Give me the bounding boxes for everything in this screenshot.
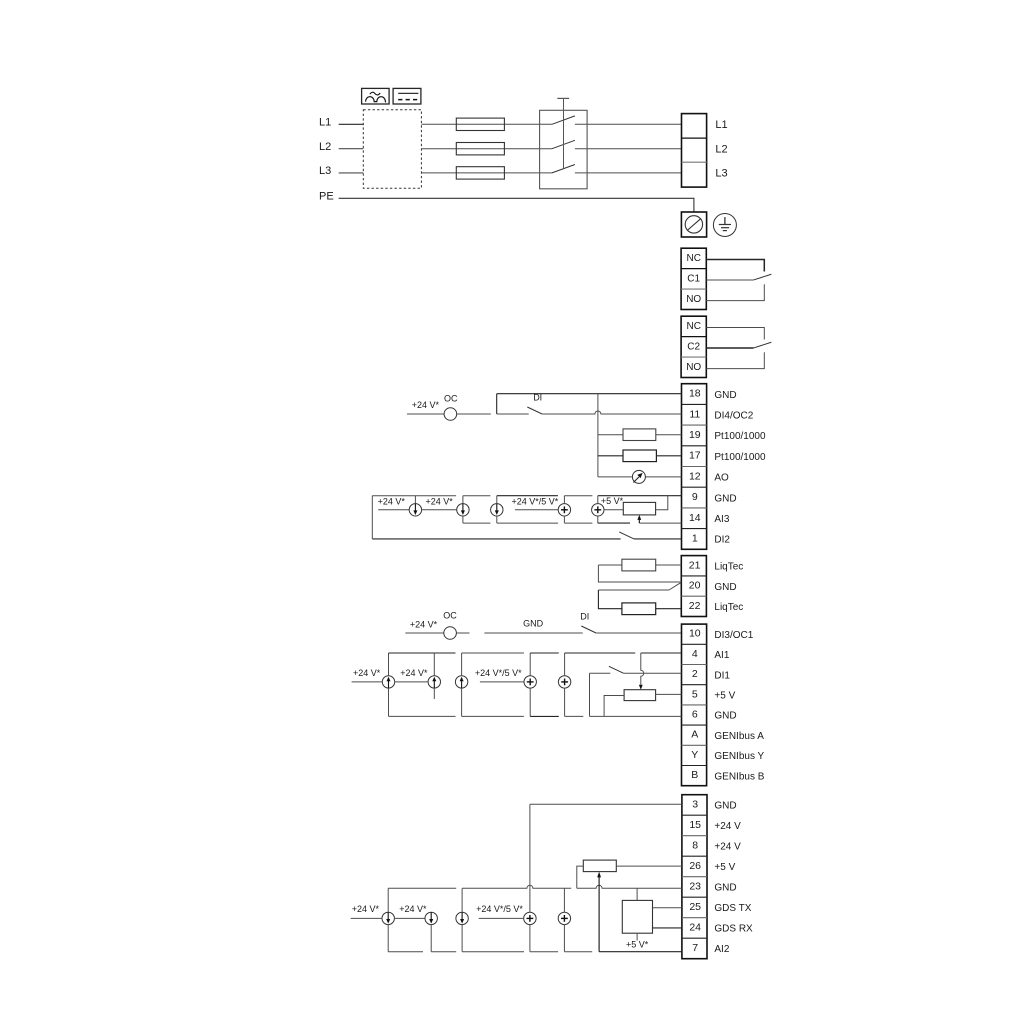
svg-text:+24 V*: +24 V* xyxy=(353,668,381,678)
svg-text:L1: L1 xyxy=(319,117,331,129)
svg-text:+24 V: +24 V xyxy=(714,842,741,853)
svg-text:Y: Y xyxy=(691,749,698,761)
svg-text:18: 18 xyxy=(689,388,701,400)
svg-text:AO: AO xyxy=(714,473,729,484)
svg-text:Pt100/1000: Pt100/1000 xyxy=(714,452,766,463)
svg-text:6: 6 xyxy=(692,709,698,721)
svg-text:NO: NO xyxy=(686,362,701,373)
svg-text:+24 V*: +24 V* xyxy=(378,496,406,506)
svg-text:GENIbus Y: GENIbus Y xyxy=(714,751,764,762)
svg-text:GND: GND xyxy=(523,619,544,629)
svg-text:NC: NC xyxy=(686,253,700,264)
svg-text:17: 17 xyxy=(689,450,701,462)
svg-text:8: 8 xyxy=(692,839,698,851)
svg-text:L3: L3 xyxy=(715,168,727,180)
svg-text:NC: NC xyxy=(686,321,700,332)
svg-text:B: B xyxy=(691,769,698,781)
svg-text:24: 24 xyxy=(689,921,701,933)
svg-text:Pt100/1000: Pt100/1000 xyxy=(714,431,766,442)
svg-text:21: 21 xyxy=(689,559,701,571)
svg-text:L1: L1 xyxy=(715,119,727,131)
svg-text:+24 V*/5 V*: +24 V*/5 V* xyxy=(475,668,522,678)
svg-text:OC: OC xyxy=(443,610,457,620)
svg-text:C2: C2 xyxy=(687,341,700,352)
svg-text:DI: DI xyxy=(533,393,542,403)
svg-text:DI3/OC1: DI3/OC1 xyxy=(714,630,753,641)
svg-text:GND: GND xyxy=(714,883,736,894)
svg-text:25: 25 xyxy=(689,901,701,913)
svg-text:GENIbus B: GENIbus B xyxy=(714,771,764,782)
svg-text:L3: L3 xyxy=(319,165,331,177)
svg-text:PE: PE xyxy=(319,191,334,203)
svg-text:+24 V*/5 V*: +24 V*/5 V* xyxy=(476,904,523,914)
svg-text:7: 7 xyxy=(692,942,698,954)
svg-text:+24 V*: +24 V* xyxy=(399,904,427,914)
svg-text:AI1: AI1 xyxy=(714,650,729,661)
svg-text:+24 V*: +24 V* xyxy=(400,668,428,678)
svg-text:1: 1 xyxy=(692,532,698,544)
svg-text:14: 14 xyxy=(689,512,701,524)
svg-text:DI2: DI2 xyxy=(714,535,730,546)
svg-text:LiqTec: LiqTec xyxy=(714,602,743,613)
svg-text:GND: GND xyxy=(714,493,736,504)
svg-text:22: 22 xyxy=(689,600,701,612)
svg-text:+24 V*: +24 V* xyxy=(426,496,454,506)
svg-text:L2: L2 xyxy=(319,141,331,153)
svg-text:9: 9 xyxy=(692,491,698,503)
svg-text:A: A xyxy=(691,729,698,741)
svg-text:NO: NO xyxy=(686,294,701,305)
svg-text:GND: GND xyxy=(714,390,736,401)
svg-text:+5 V*: +5 V* xyxy=(601,496,624,506)
svg-text:+24 V*: +24 V* xyxy=(412,400,440,410)
svg-text:4: 4 xyxy=(692,648,698,660)
svg-text:GND: GND xyxy=(714,711,736,722)
svg-text:GDS RX: GDS RX xyxy=(714,924,753,935)
svg-text:+5 V*: +5 V* xyxy=(626,939,649,949)
svg-text:11: 11 xyxy=(689,408,700,420)
svg-text:3: 3 xyxy=(692,798,698,810)
svg-text:L2: L2 xyxy=(715,143,727,155)
svg-text:+5 V: +5 V xyxy=(714,862,735,873)
svg-text:5: 5 xyxy=(692,688,698,700)
svg-text:AI3: AI3 xyxy=(714,514,729,525)
svg-text:+24 V*/5 V*: +24 V*/5 V* xyxy=(512,496,559,506)
svg-text:DI: DI xyxy=(580,611,589,621)
svg-text:12: 12 xyxy=(689,470,701,482)
svg-text:GDS TX: GDS TX xyxy=(714,903,751,914)
svg-text:19: 19 xyxy=(689,429,701,441)
svg-text:AI2: AI2 xyxy=(714,944,729,955)
svg-text:DI4/OC2: DI4/OC2 xyxy=(714,410,753,421)
svg-text:2: 2 xyxy=(692,668,698,680)
svg-text:GND: GND xyxy=(714,582,736,593)
svg-text:23: 23 xyxy=(689,880,701,892)
svg-text:10: 10 xyxy=(689,628,701,640)
svg-text:+24 V*: +24 V* xyxy=(410,619,438,629)
svg-text:C1: C1 xyxy=(687,273,700,284)
svg-text:GND: GND xyxy=(714,801,736,812)
svg-text:LiqTec: LiqTec xyxy=(714,561,743,572)
svg-text:15: 15 xyxy=(689,819,701,831)
svg-text:DI1: DI1 xyxy=(714,670,730,681)
svg-text:20: 20 xyxy=(689,580,701,592)
svg-text:+24 V: +24 V xyxy=(714,821,741,832)
svg-text:26: 26 xyxy=(689,860,701,872)
svg-text:GENIbus A: GENIbus A xyxy=(714,731,764,742)
svg-text:OC: OC xyxy=(444,394,458,404)
svg-text:+5 V: +5 V xyxy=(714,691,735,702)
svg-text:+24 V*: +24 V* xyxy=(352,904,380,914)
